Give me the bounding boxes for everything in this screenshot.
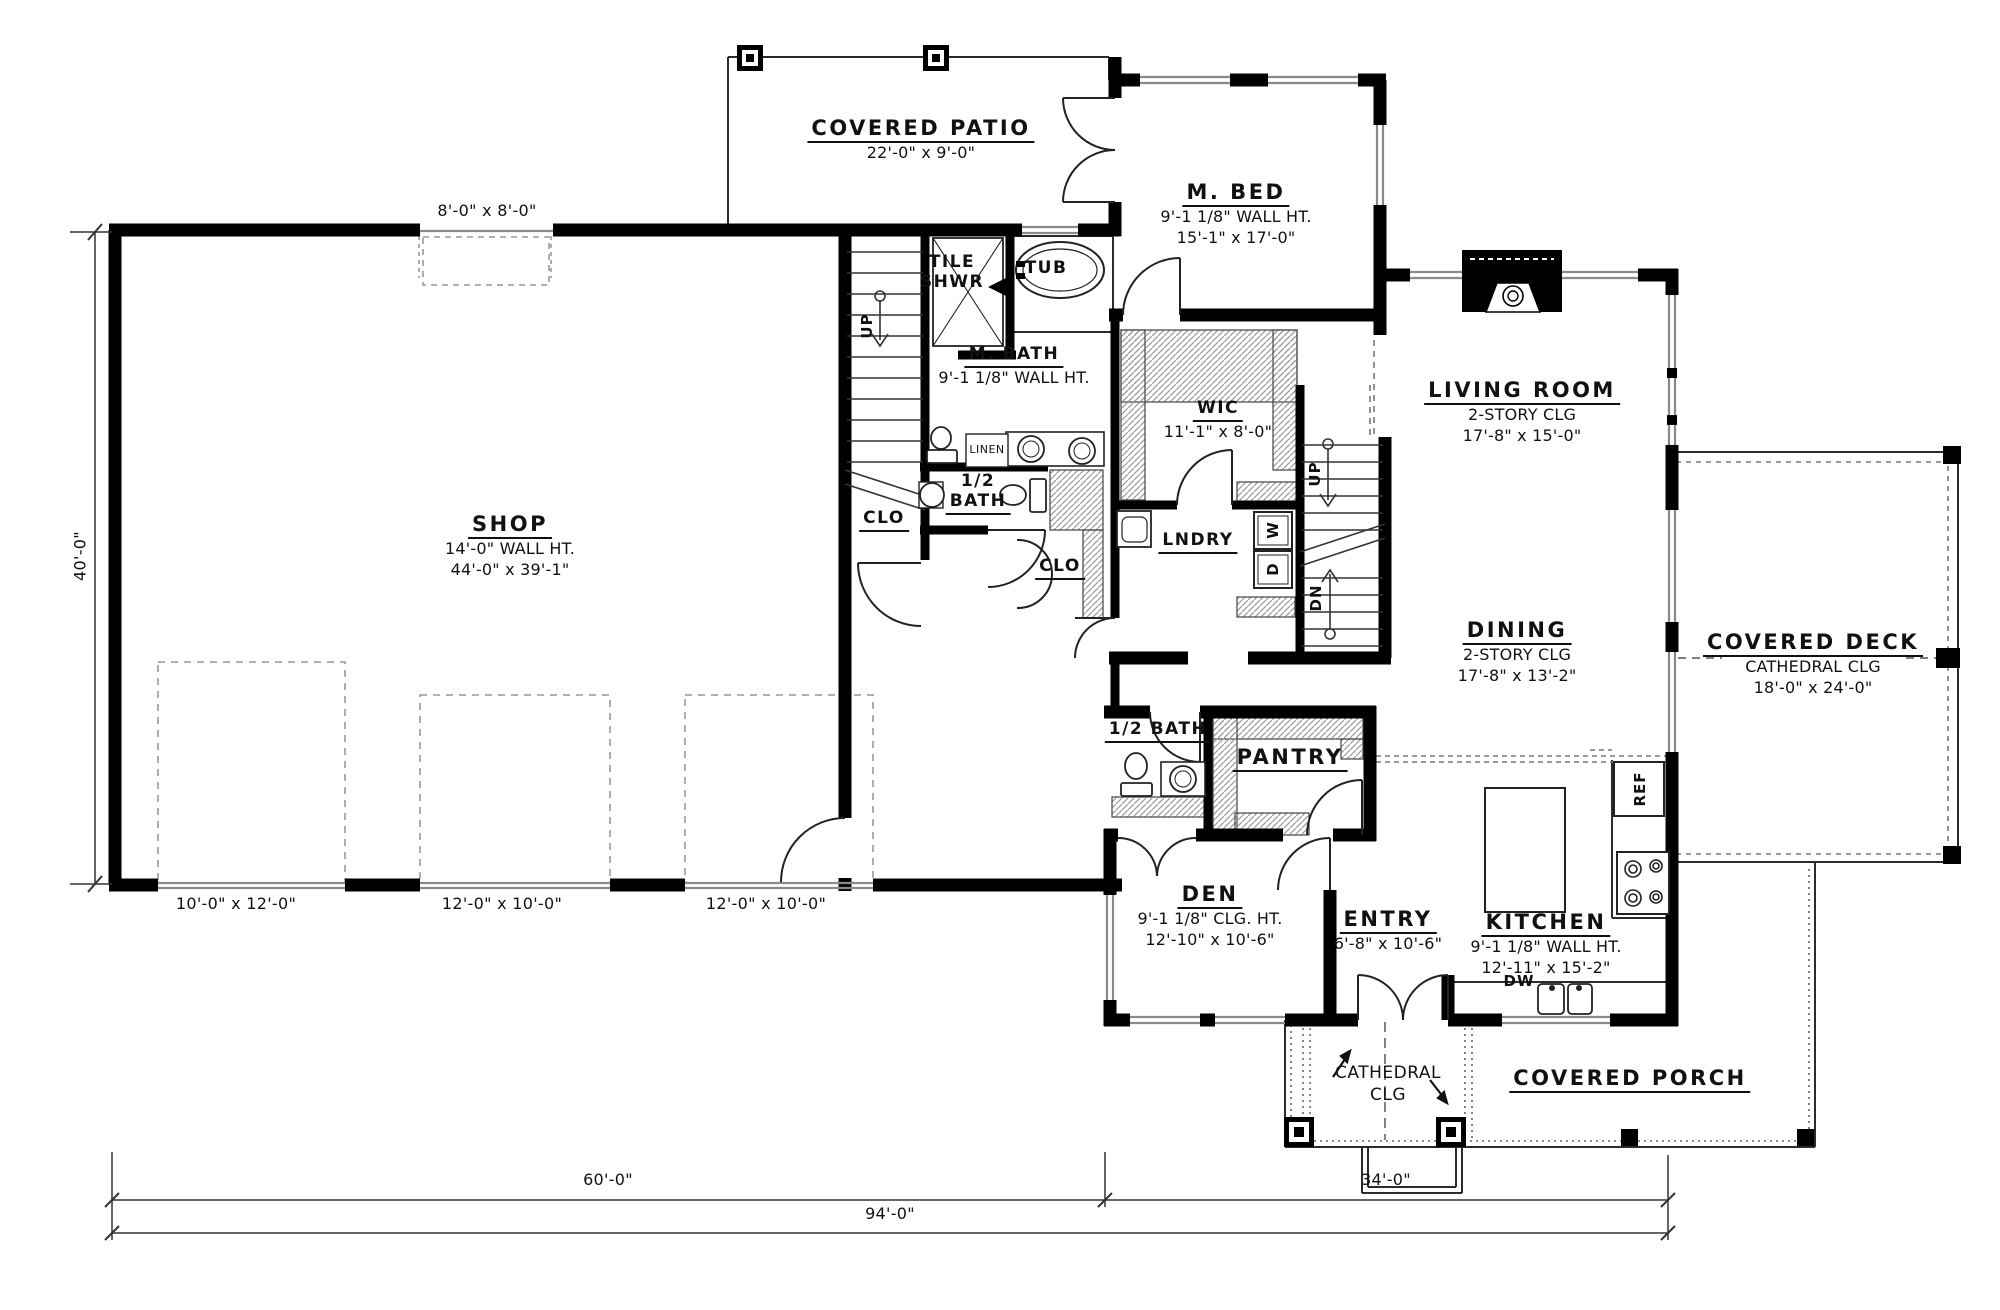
master-bath-fixtures <box>927 427 1104 467</box>
room-label-clo-under-stairs: CLO <box>859 508 909 532</box>
label-up-left: UP <box>858 313 876 338</box>
floor-plan-drawing <box>0 0 2000 1310</box>
room-label-m-bed: M. BED 9'-1 1/8" WALL HT. 15'-1" x 17'-0… <box>1160 180 1311 249</box>
label-ref: REF <box>1631 771 1649 806</box>
dim-house-width: 34'-0" <box>1361 1170 1411 1189</box>
dim-garage-door-1: 10'-0" x 12'-0" <box>176 894 296 913</box>
dim-shop-width: 60'-0" <box>583 1170 633 1189</box>
room-label-half-bath-upper: 1/2 BATH <box>946 471 1011 515</box>
stairs-left <box>845 252 925 510</box>
label-up-right: UP <box>1306 461 1324 486</box>
label-cathedral-clg: CATHEDRAL CLG <box>1335 1062 1441 1106</box>
room-label-tub: TUB <box>1025 258 1068 278</box>
room-label-den: DEN 9'-1 1/8" CLG. HT. 12'-10" x 10'-6" <box>1137 882 1282 951</box>
room-label-pantry: PANTRY <box>1233 745 1348 772</box>
dim-garage-door-2: 12'-0" x 10'-0" <box>442 894 562 913</box>
label-dryer: D <box>1264 562 1282 575</box>
dim-overall-width: 94'-0" <box>865 1204 915 1223</box>
room-label-kitchen: KITCHEN 9'-1 1/8" WALL HT. 12'-11" x 15'… <box>1470 910 1621 979</box>
room-label-m-bath: M. BATH 9'-1 1/8" WALL HT. <box>938 344 1089 388</box>
room-label-covered-porch: COVERED PORCH <box>1509 1066 1750 1093</box>
half-bath-lower-fixtures <box>1121 753 1205 796</box>
dim-shop-rear-door: 8'-0" x 8'-0" <box>437 201 536 220</box>
label-linen: LINEN <box>969 443 1004 456</box>
fireplace <box>1462 250 1562 312</box>
dim-garage-door-3: 12'-0" x 10'-0" <box>706 894 826 913</box>
room-label-dining: DINING 2-STORY CLG 17'-8" x 13'-2" <box>1458 618 1577 687</box>
dim-shop-height: 40'-0" <box>71 531 90 581</box>
room-label-shop: SHOP 14'-0" WALL HT. 44'-0" x 39'-1" <box>445 512 575 581</box>
room-label-tile-shwr: TILE SHWR <box>920 252 984 293</box>
floor-plan: COVERED PATIO 22'-0" x 9'-0" M. BED 9'-1… <box>0 0 2000 1310</box>
label-washer: W <box>1264 521 1282 539</box>
room-label-half-bath-lower: 1/2 BATH <box>1105 719 1211 743</box>
covered-patio-dim: 22'-0" x 9'-0" <box>807 143 1034 164</box>
room-label-living-room: LIVING ROOM 2-STORY CLG 17'-8" x 15'-0" <box>1424 378 1620 447</box>
label-dn: DN <box>1307 584 1325 611</box>
room-label-clo-hall: CLO <box>1035 556 1085 580</box>
room-label-covered-deck: COVERED DECK CATHEDRAL CLG 18'-0" x 24'-… <box>1703 630 1923 699</box>
covered-patio-title: COVERED PATIO <box>807 116 1034 143</box>
label-dw: DW <box>1504 972 1535 990</box>
room-label-lndry: LNDRY <box>1158 530 1237 554</box>
structural-posts <box>737 45 1961 1147</box>
room-label-entry: ENTRY 6'-8" x 10'-6" <box>1334 907 1442 955</box>
room-label-wic: WIC 11'-1" x 8'-0" <box>1164 398 1272 442</box>
room-label-covered-patio: COVERED PATIO 22'-0" x 9'-0" <box>807 116 1034 164</box>
